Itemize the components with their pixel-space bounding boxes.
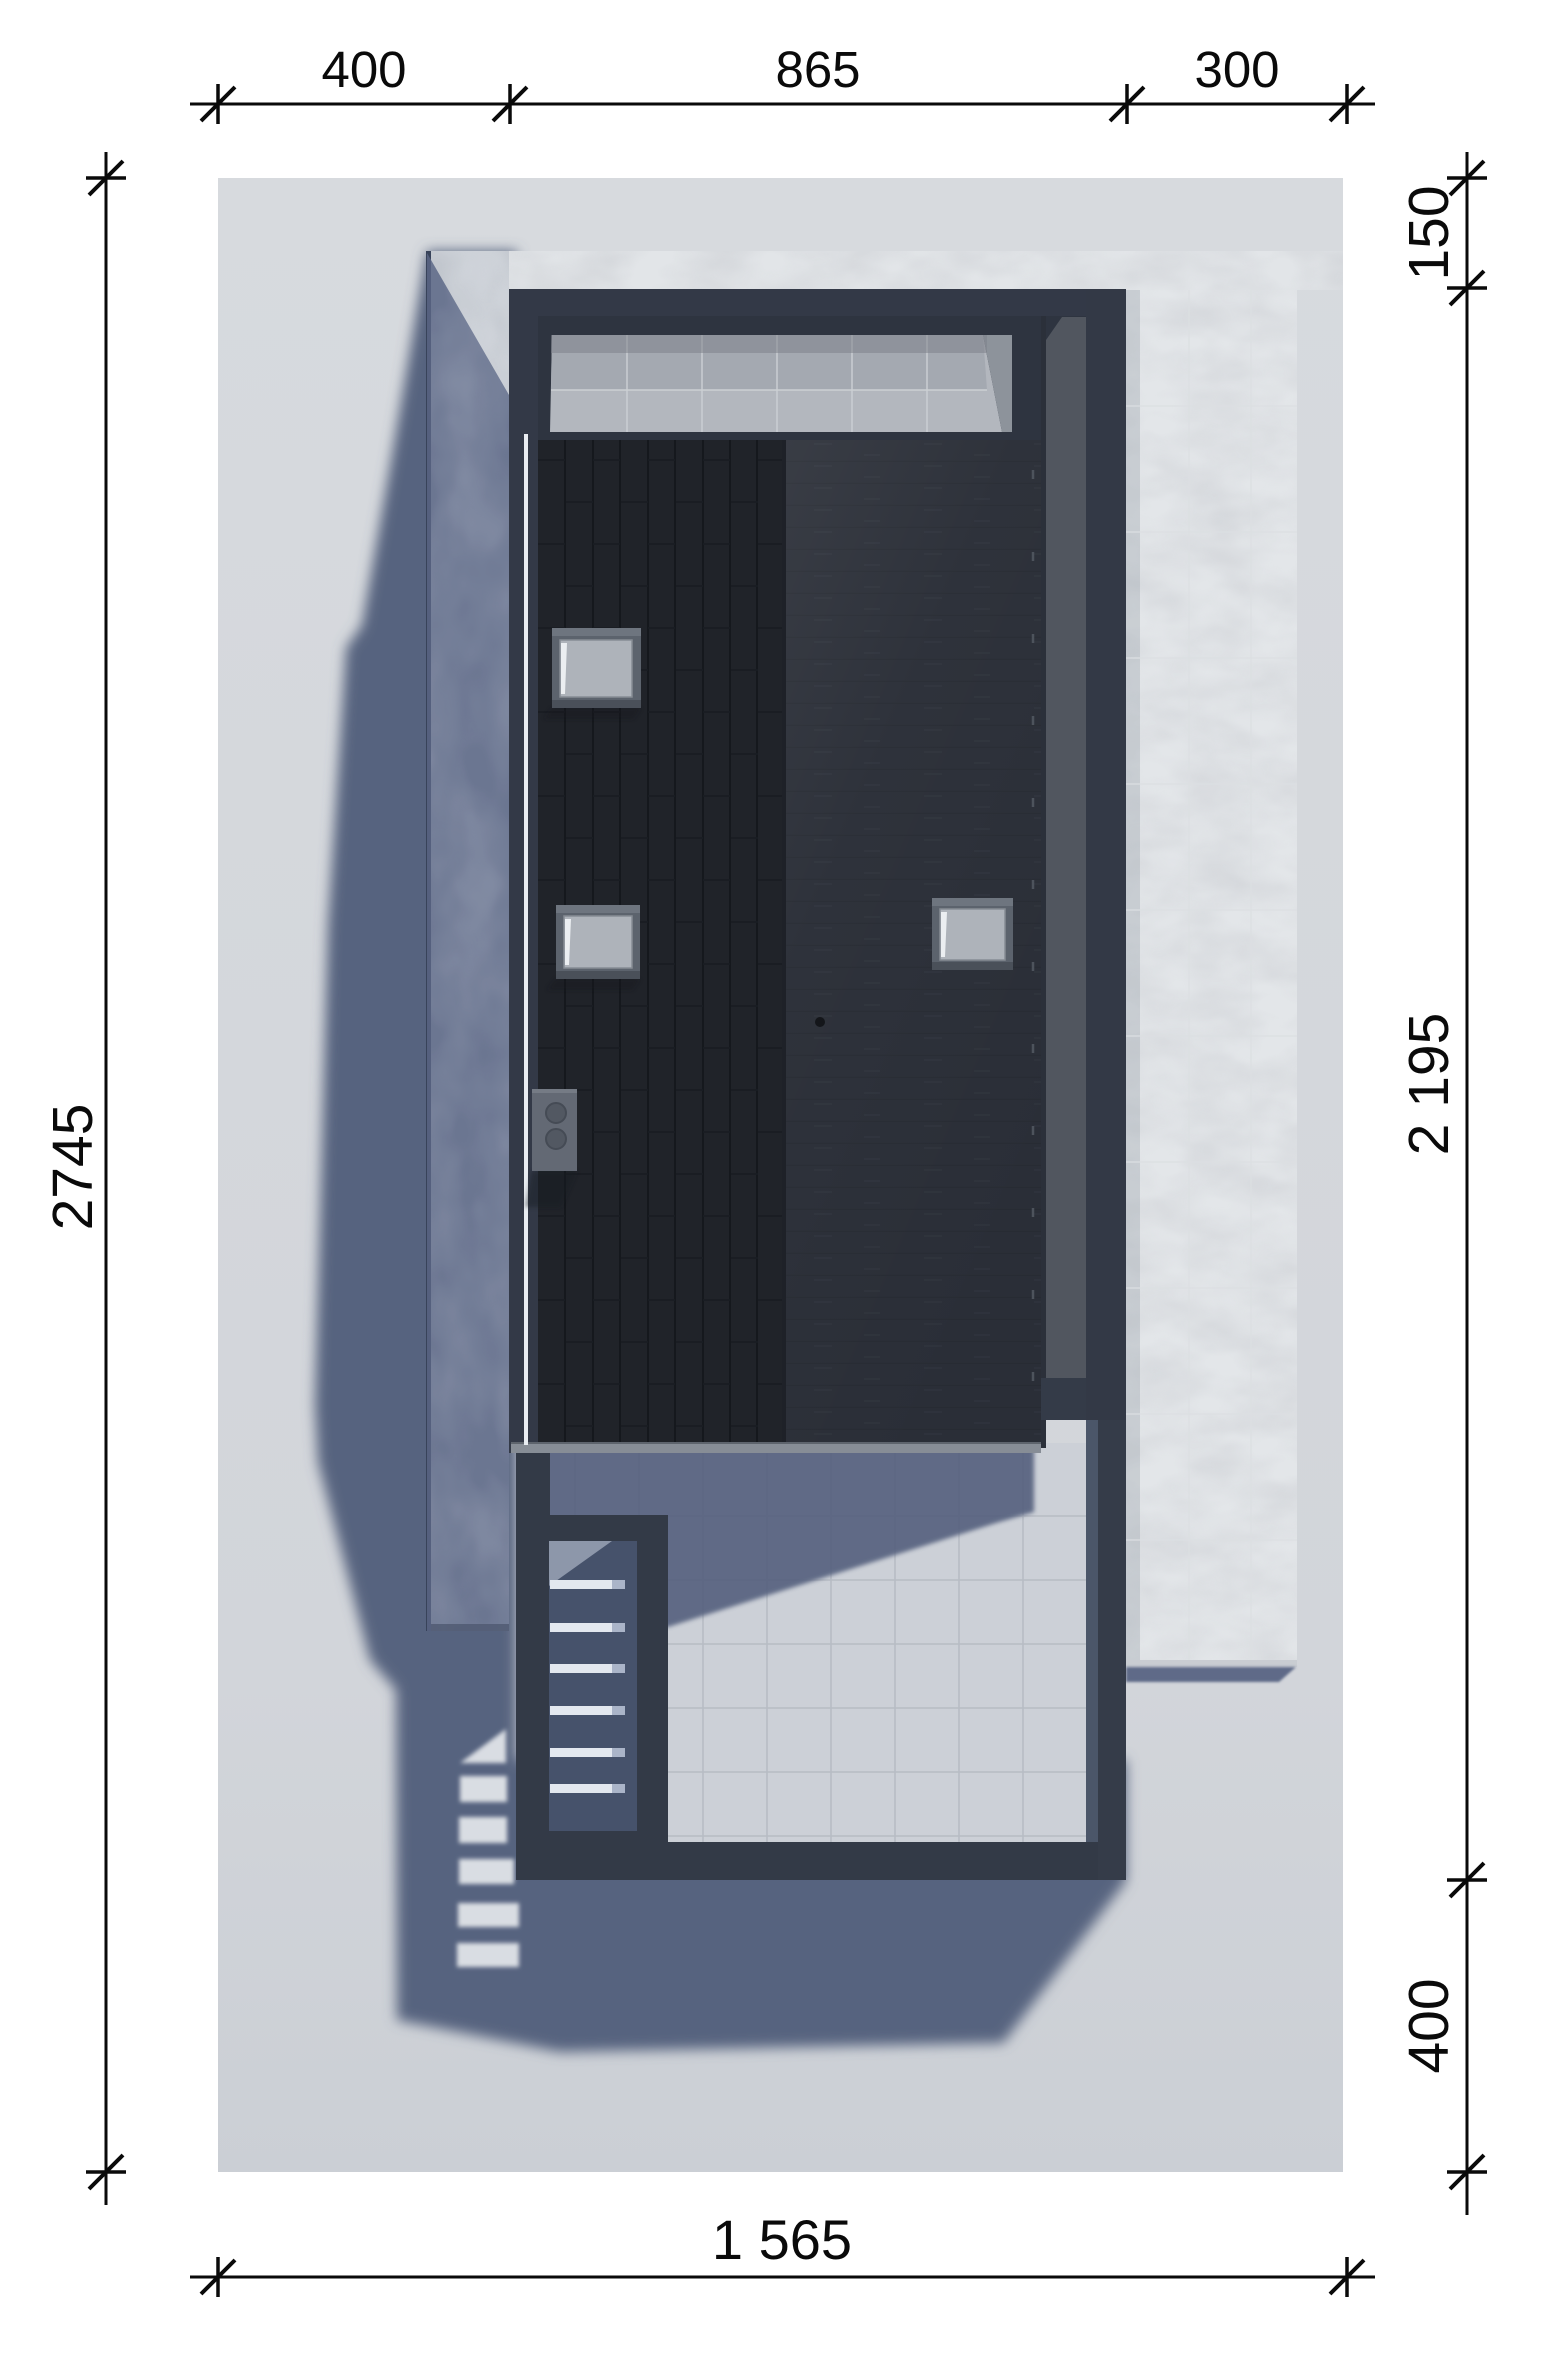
svg-text:2 195: 2 195	[1397, 1013, 1461, 1156]
svg-text:300: 300	[1194, 41, 1279, 98]
svg-text:400: 400	[1397, 1978, 1461, 2073]
svg-text:2745: 2745	[41, 1104, 105, 1231]
svg-text:150: 150	[1397, 185, 1461, 280]
svg-text:865: 865	[775, 41, 860, 98]
svg-text:1 565: 1 565	[712, 2208, 852, 2271]
svg-text:400: 400	[321, 41, 406, 98]
